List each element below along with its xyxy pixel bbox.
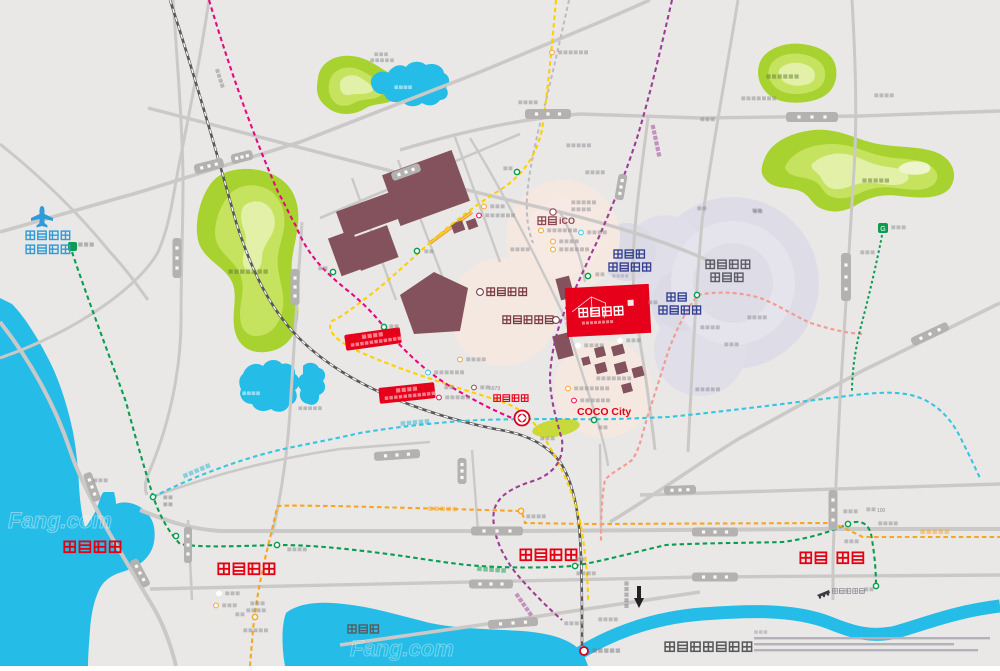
svg-text:100: 100 <box>877 508 886 514</box>
svg-text:Fang.com: Fang.com <box>350 636 454 661</box>
svg-text:Fang.com: Fang.com <box>8 508 112 533</box>
svg-text:G: G <box>880 226 885 233</box>
svg-text:iCO: iCO <box>559 216 575 226</box>
svg-text:COCO City: COCO City <box>577 406 631 418</box>
svg-text:6979: 6979 <box>489 386 500 392</box>
